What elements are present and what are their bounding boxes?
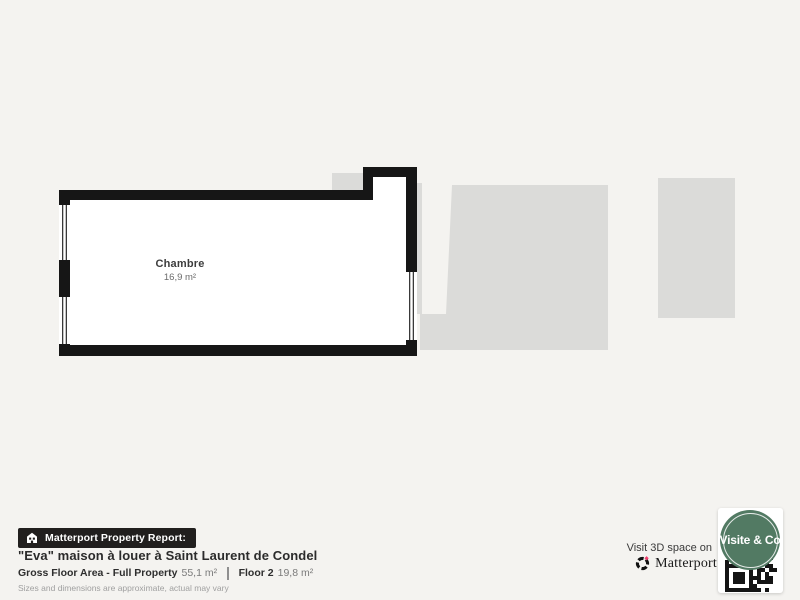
adjacent-area-wall-sliver <box>417 183 422 314</box>
property-title: "Eva" maison à louer à Saint Laurent de … <box>18 549 317 562</box>
window-left-lower <box>59 297 70 344</box>
room-floor <box>70 177 406 345</box>
stat-label-gross-floor-area: Gross Floor Area - Full Property <box>18 568 177 579</box>
stat-value-gross-floor-area: 55,1 m² <box>181 568 217 579</box>
area-stats: Gross Floor Area - Full Property 55,1 m²… <box>18 567 313 580</box>
visite-co-badge: Visite & Co <box>718 508 783 593</box>
visite-co-label: Visite & Co <box>720 533 781 547</box>
room-label: Chambre 16,9 m² <box>130 259 230 283</box>
adjacent-area-middle <box>420 185 608 350</box>
matterport-logo-icon <box>635 556 650 571</box>
room-area: 16,9 m² <box>130 273 230 283</box>
stat-label-floor: Floor 2 <box>239 568 274 579</box>
stats-divider <box>227 567 229 580</box>
disclaimer-text: Sizes and dimensions are approximate, ac… <box>18 584 229 593</box>
floorplan <box>0 0 800 600</box>
visite-co-circle: Visite & Co <box>720 510 780 570</box>
matterport-wordmark: Matterport <box>655 557 717 571</box>
room-name: Chambre <box>130 259 230 270</box>
window-right <box>406 272 417 340</box>
report-bar-label: Matterport Property Report: <box>45 533 186 544</box>
stat-value-floor: 19,8 m² <box>278 568 314 579</box>
visit-3d-text: Visit 3D space on <box>627 543 712 554</box>
adjacent-area-right <box>658 178 735 318</box>
report-header-bar: Matterport Property Report: <box>18 528 196 548</box>
adjacent-area-top-notch <box>332 173 363 190</box>
window-left-upper <box>59 205 70 260</box>
matterport-link[interactable]: Matterport <box>635 556 717 571</box>
matterport-property-report-page: Chambre 16,9 m² Matterport Property Repo… <box>0 0 800 600</box>
house-icon <box>26 532 38 544</box>
